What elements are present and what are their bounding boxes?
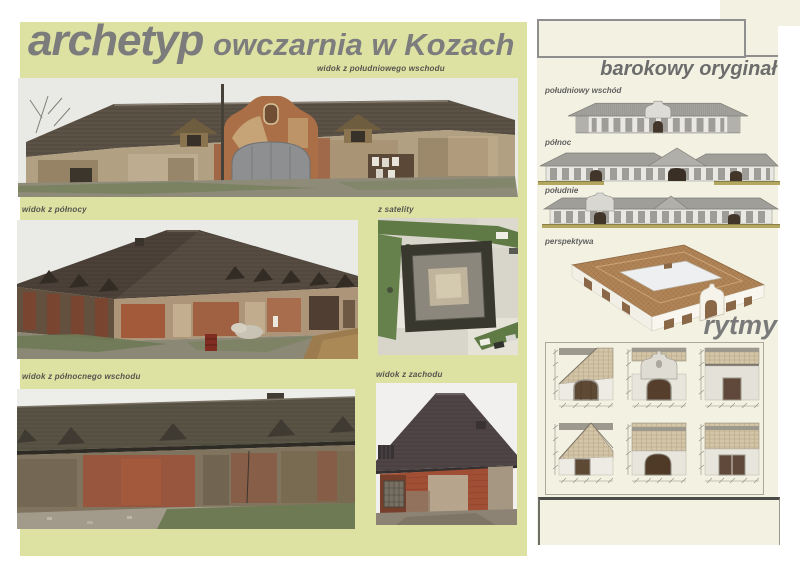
rytmy-cell-gable-arch <box>624 346 690 419</box>
arched-door <box>590 170 602 181</box>
page-title: owczarnia w Kozach <box>213 27 514 63</box>
rytmy-cell-band-door <box>697 346 763 419</box>
drawing-south-elevation <box>542 192 780 228</box>
rytmy-cell-hip-arch <box>551 346 617 419</box>
arched-door <box>728 214 740 224</box>
building-roof-ring <box>401 241 496 333</box>
drawing-southeast-elevation <box>566 99 750 139</box>
roof <box>17 397 355 455</box>
photo-north-view <box>17 220 358 359</box>
brand-title: archetyp <box>28 16 203 66</box>
arched-door <box>653 121 663 133</box>
photo-west-view <box>376 383 517 525</box>
rytmy-cell-band-arch <box>624 421 690 494</box>
caption-southeast-view: widok z południowego wschodu <box>317 64 445 73</box>
utility-pole <box>221 84 224 186</box>
rytmy-cell-band-double-door <box>697 421 763 494</box>
baroque-gable <box>586 193 614 211</box>
photo-northeast-view <box>17 389 355 529</box>
caption-north-view: widok z północy <box>22 205 87 214</box>
caption-satellite-view: z satelity <box>378 205 414 214</box>
rytmy-cell-hip-door <box>551 421 617 494</box>
poster-page: archetyp owczarnia w Kozach widok z połu… <box>0 0 800 566</box>
rytmy-heading: rytmy <box>660 310 777 341</box>
photo-southeast-view <box>18 78 518 197</box>
barred-window <box>384 481 404 507</box>
arched-door <box>594 212 606 224</box>
courtyard-door <box>664 263 672 269</box>
caption-northeast-view: widok z północnego wschodu <box>22 372 141 381</box>
title-block-box-line <box>746 55 778 57</box>
arched-door <box>730 171 742 181</box>
label-southeast-elevation: południowy wschód <box>545 86 621 95</box>
title-block-box <box>537 19 746 58</box>
drawing-north-elevation <box>538 145 780 186</box>
wall <box>17 445 355 513</box>
arched-door <box>668 168 686 181</box>
right-panel-heading: barokowy oryginał <box>560 58 777 81</box>
photo-satellite-view <box>378 218 518 355</box>
footer-box <box>538 497 780 545</box>
caption-west-view: widok z zachodu <box>376 370 443 379</box>
